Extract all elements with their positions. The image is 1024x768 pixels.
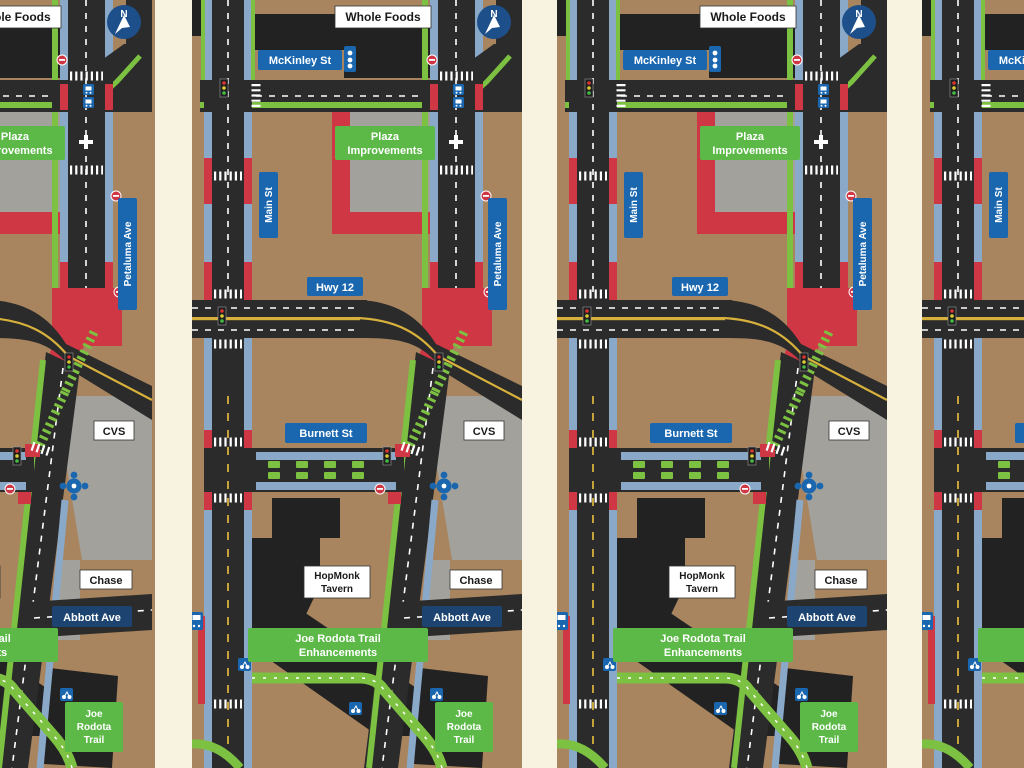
svg-text:Rodota: Rodota (812, 722, 847, 733)
svg-text:Hwy 12: Hwy 12 (681, 282, 719, 294)
main-st-label: Main St (624, 172, 643, 238)
svg-text:Joe: Joe (455, 709, 473, 720)
joe-rodota-trail-label: Joe Rodota Trail (435, 702, 493, 752)
svg-text:Rodota: Rodota (447, 722, 482, 733)
cvs-label: CVS (94, 421, 134, 440)
svg-text:Joe: Joe (820, 709, 838, 720)
parking-lane (569, 0, 577, 768)
burnett-st-label: Burnett St (285, 423, 367, 443)
svg-text:CVS: CVS (473, 426, 496, 438)
burnett-st-label: Burnett St (650, 423, 732, 443)
map-panel-1[interactable]: N Whole Foods McKinley St Plaza Improvem (0, 0, 155, 768)
chase-label: Chase (450, 570, 502, 589)
svg-text:Chase: Chase (824, 575, 857, 587)
bike-signal-icon (709, 46, 721, 72)
joe-rodota-trail-enhancements-label: Joe Rodota Trail Enhancements (0, 628, 58, 662)
traffic-signal-icon (948, 307, 956, 325)
bike-icon (60, 688, 73, 701)
whole-foods-label: Whole Foods (335, 6, 431, 28)
svg-text:Enhancements: Enhancements (299, 647, 377, 659)
hopmonk-tavern-label: HopMonk Tavern (304, 566, 370, 598)
svg-text:Joe Rodota Trail: Joe Rodota Trail (0, 633, 11, 645)
cvs-label: CVS (829, 421, 869, 440)
transit-icon (818, 84, 829, 95)
map-panel-3[interactable]: N Whole Foods McKinley St Plaza Improvem (557, 0, 887, 768)
traffic-signal-icon (585, 79, 593, 97)
bus-stop-icon (922, 612, 933, 630)
plaza-improvements-label: Plaza Improvements (700, 126, 800, 160)
traffic-signal-icon (748, 447, 756, 465)
street-map: N Whole Foods McKinley St Plaza Improvem (557, 0, 887, 768)
bus-stop-icon (192, 612, 203, 630)
petaluma-ave-label: Petaluma Ave (853, 198, 872, 310)
whole-foods-label: Whole Foods (700, 6, 796, 28)
svg-text:Improvements: Improvements (347, 145, 422, 157)
svg-text:McKinley St: McKinley St (634, 55, 697, 67)
svg-text:Burnett St: Burnett St (664, 428, 718, 440)
compass-north-icon: N (842, 5, 876, 39)
traffic-signal-icon (800, 353, 808, 371)
mckinley-st-label: McKinley St (988, 50, 1024, 70)
svg-text:Petaluma Ave: Petaluma Ave (858, 221, 869, 286)
svg-text:Joe: Joe (85, 709, 103, 720)
svg-text:Whole Foods: Whole Foods (710, 10, 786, 24)
svg-text:HopMonk: HopMonk (314, 571, 360, 582)
svg-text:Trail: Trail (84, 735, 105, 746)
svg-text:Abbott Ave: Abbott Ave (433, 612, 491, 624)
svg-text:Enhancements: Enhancements (664, 647, 742, 659)
cvs-label: CVS (464, 421, 504, 440)
joe-rodota-trail-label: Joe Rodota Trail (65, 702, 123, 752)
svg-text:Plaza: Plaza (736, 131, 765, 143)
svg-text:Tavern: Tavern (321, 584, 353, 595)
mckinley-st-label: McKinley St (623, 50, 707, 70)
petaluma-ave-label: Petaluma Ave (118, 198, 137, 310)
svg-text:HopMonk: HopMonk (679, 571, 725, 582)
street-map: N Whole Foods McKinley St Plaza Improvem (0, 0, 152, 768)
plaza-improvements-label: Plaza Improvements (0, 126, 65, 160)
bike-signal-icon (344, 46, 356, 72)
svg-text:Joe Rodota Trail: Joe Rodota Trail (660, 633, 746, 645)
svg-text:Whole Foods: Whole Foods (345, 10, 421, 24)
mckinley-st-label: McKinley St (258, 50, 342, 70)
street-map: N Whole Foods McKinley St Plaza Improvem (192, 0, 522, 768)
plaza-improvements-label: Plaza Improvements (335, 126, 435, 160)
svg-text:Tavern: Tavern (686, 584, 718, 595)
svg-text:McKinley St: McKinley St (999, 55, 1024, 67)
svg-text:Petaluma Ave: Petaluma Ave (493, 221, 504, 286)
chase-label: Chase (815, 570, 867, 589)
svg-text:Whole Foods: Whole Foods (0, 10, 51, 24)
svg-text:Plaza: Plaza (1, 131, 30, 143)
petaluma-ave-label: Petaluma Ave (488, 198, 507, 310)
svg-text:CVS: CVS (838, 426, 861, 438)
svg-text:Rodota: Rodota (77, 722, 112, 733)
traffic-signal-icon (950, 79, 958, 97)
abbott-ave-label: Abbott Ave (422, 606, 502, 627)
joe-rodota-trail-enhancements-label: Joe Rodota Trail Enhancements (613, 628, 793, 662)
svg-text:Abbott Ave: Abbott Ave (798, 612, 856, 624)
svg-text:Chase: Chase (89, 575, 122, 587)
svg-text:CVS: CVS (103, 426, 126, 438)
hwy-12-label: Hwy 12 (672, 277, 728, 296)
traffic-signal-icon (383, 447, 391, 465)
svg-text:Petaluma Ave: Petaluma Ave (123, 221, 134, 286)
compass-north-icon: N (477, 5, 511, 39)
traffic-signal-icon (65, 353, 73, 371)
traffic-signal-icon (13, 447, 21, 465)
svg-text:Improvements: Improvements (0, 145, 53, 157)
transit-icon (818, 97, 829, 108)
bike-icon (430, 688, 443, 701)
traffic-signal-icon (583, 307, 591, 325)
bus-stop-icon (557, 612, 568, 630)
svg-text:Joe Rodota Trail: Joe Rodota Trail (295, 633, 381, 645)
burnett-st-label: Burnett St (1015, 423, 1024, 443)
parking-lane (204, 0, 212, 768)
svg-text:Main St: Main St (264, 187, 275, 223)
svg-text:Abbott Ave: Abbott Ave (63, 612, 121, 624)
bike-icon (795, 688, 808, 701)
svg-text:Enhancements: Enhancements (0, 647, 7, 659)
traffic-signal-icon (220, 79, 228, 97)
joe-rodota-trail-label: Joe Rodota Trail (800, 702, 858, 752)
map-panel-2[interactable]: N Whole Foods McKinley St Plaza Improvem (192, 0, 522, 768)
transit-icon (83, 97, 94, 108)
transit-icon (453, 84, 464, 95)
chase-label: Chase (80, 570, 132, 589)
svg-text:Main St: Main St (629, 187, 640, 223)
svg-text:Main St: Main St (994, 187, 1005, 223)
bike-icon (349, 702, 362, 715)
compass-north-icon: N (107, 5, 141, 39)
svg-text:Plaza: Plaza (371, 131, 400, 143)
map-alternatives-board: N Whole Foods McKinley St Plaza Improvem (0, 0, 1024, 768)
map-panel-4[interactable]: N Whole Foods McKinley St Plaza Improvem (922, 0, 1024, 768)
traffic-signal-icon (435, 353, 443, 371)
transit-icon (83, 84, 94, 95)
svg-text:Improvements: Improvements (712, 145, 787, 157)
svg-text:McKinley St: McKinley St (269, 55, 332, 67)
svg-text:Hwy 12: Hwy 12 (316, 282, 354, 294)
abbott-ave-label: Abbott Ave (52, 606, 132, 627)
street-map: N Whole Foods McKinley St Plaza Improvem (922, 0, 1024, 768)
hwy-12-label: Hwy 12 (307, 277, 363, 296)
parking-lane (934, 0, 942, 768)
svg-text:Trail: Trail (819, 735, 840, 746)
hopmonk-tavern-label: HopMonk Tavern (669, 566, 735, 598)
svg-text:Chase: Chase (459, 575, 492, 587)
main-st-label: Main St (259, 172, 278, 238)
joe-rodota-trail-enhancements-label: Joe Rodota Trail Enhancements (248, 628, 428, 662)
whole-foods-label: Whole Foods (0, 6, 61, 28)
joe-rodota-trail-enhancements-label: Joe Rodota Trail Enhancements (978, 628, 1024, 662)
bike-icon (714, 702, 727, 715)
svg-text:Trail: Trail (454, 735, 475, 746)
traffic-signal-icon (218, 307, 226, 325)
main-st-label: Main St (989, 172, 1008, 238)
svg-text:Burnett St: Burnett St (299, 428, 353, 440)
transit-icon (453, 97, 464, 108)
abbott-ave-label: Abbott Ave (787, 606, 867, 627)
